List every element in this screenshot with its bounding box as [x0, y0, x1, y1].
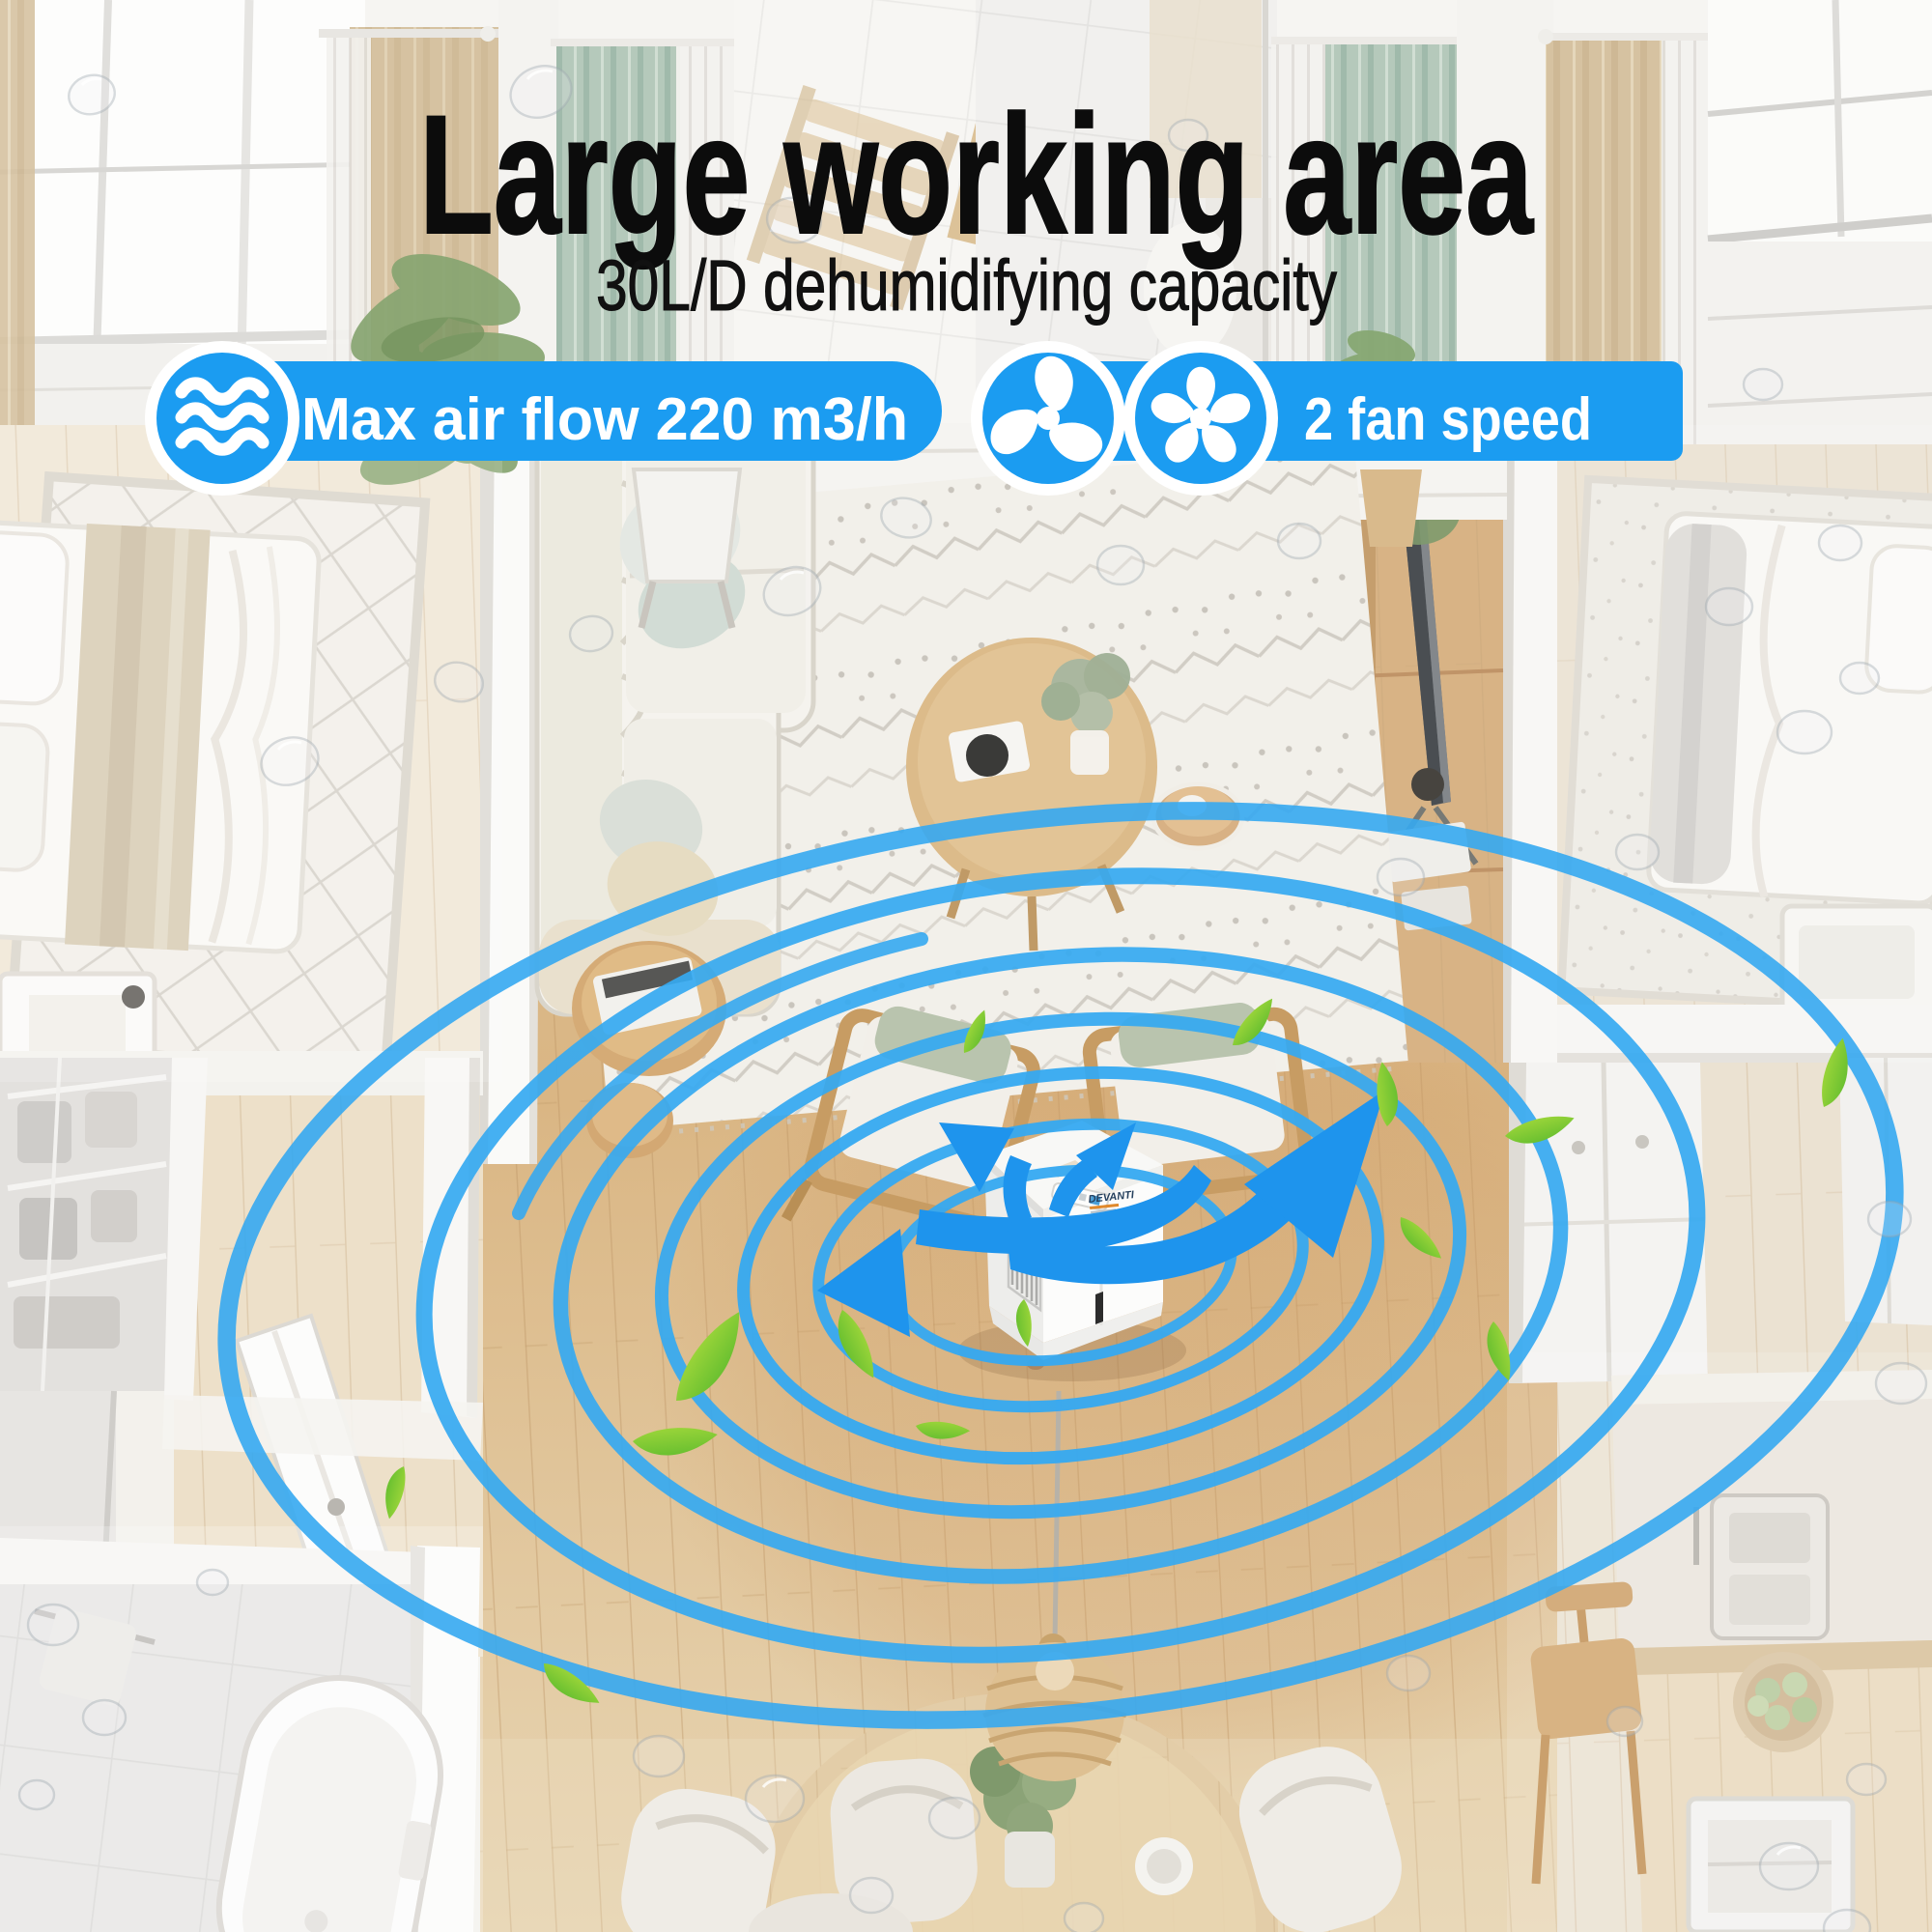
svg-text:30L/D dehumidifying capacity: 30L/D dehumidifying capacity [596, 245, 1337, 326]
svg-text:2 fan speed: 2 fan speed [1304, 386, 1592, 453]
svg-text:Large working area: Large working area [419, 81, 1534, 270]
svg-text:Max air flow 220 m3/h: Max air flow 220 m3/h [301, 386, 908, 453]
